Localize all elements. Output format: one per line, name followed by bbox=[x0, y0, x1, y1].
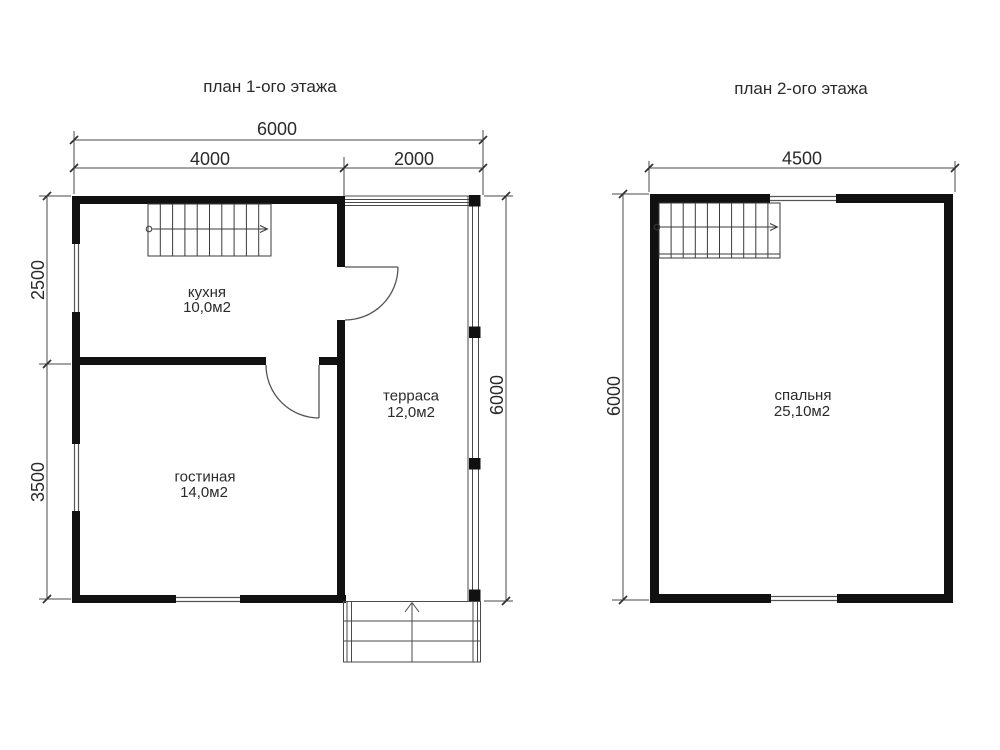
svg-text:спальня: спальня bbox=[775, 387, 832, 404]
svg-text:2500: 2500 bbox=[28, 260, 48, 300]
svg-text:4500: 4500 bbox=[782, 149, 822, 169]
svg-text:6000: 6000 bbox=[257, 119, 297, 139]
svg-text:6000: 6000 bbox=[487, 375, 507, 415]
svg-text:14,0м2: 14,0м2 bbox=[180, 484, 228, 501]
svg-text:2000: 2000 bbox=[394, 149, 434, 169]
svg-text:план 1-ого этажа: план 1-ого этажа bbox=[203, 77, 337, 96]
svg-text:4000: 4000 bbox=[190, 149, 230, 169]
svg-text:план 2-ого этажа: план 2-ого этажа bbox=[734, 79, 868, 98]
svg-text:3500: 3500 bbox=[28, 462, 48, 502]
svg-text:гостиная: гостиная bbox=[175, 469, 236, 486]
svg-text:терраса: терраса bbox=[383, 388, 440, 405]
svg-text:6000: 6000 bbox=[604, 376, 624, 416]
svg-text:10,0м2: 10,0м2 bbox=[183, 299, 231, 316]
svg-text:25,10м2: 25,10м2 bbox=[774, 403, 830, 420]
svg-text:12,0м2: 12,0м2 bbox=[387, 404, 435, 421]
